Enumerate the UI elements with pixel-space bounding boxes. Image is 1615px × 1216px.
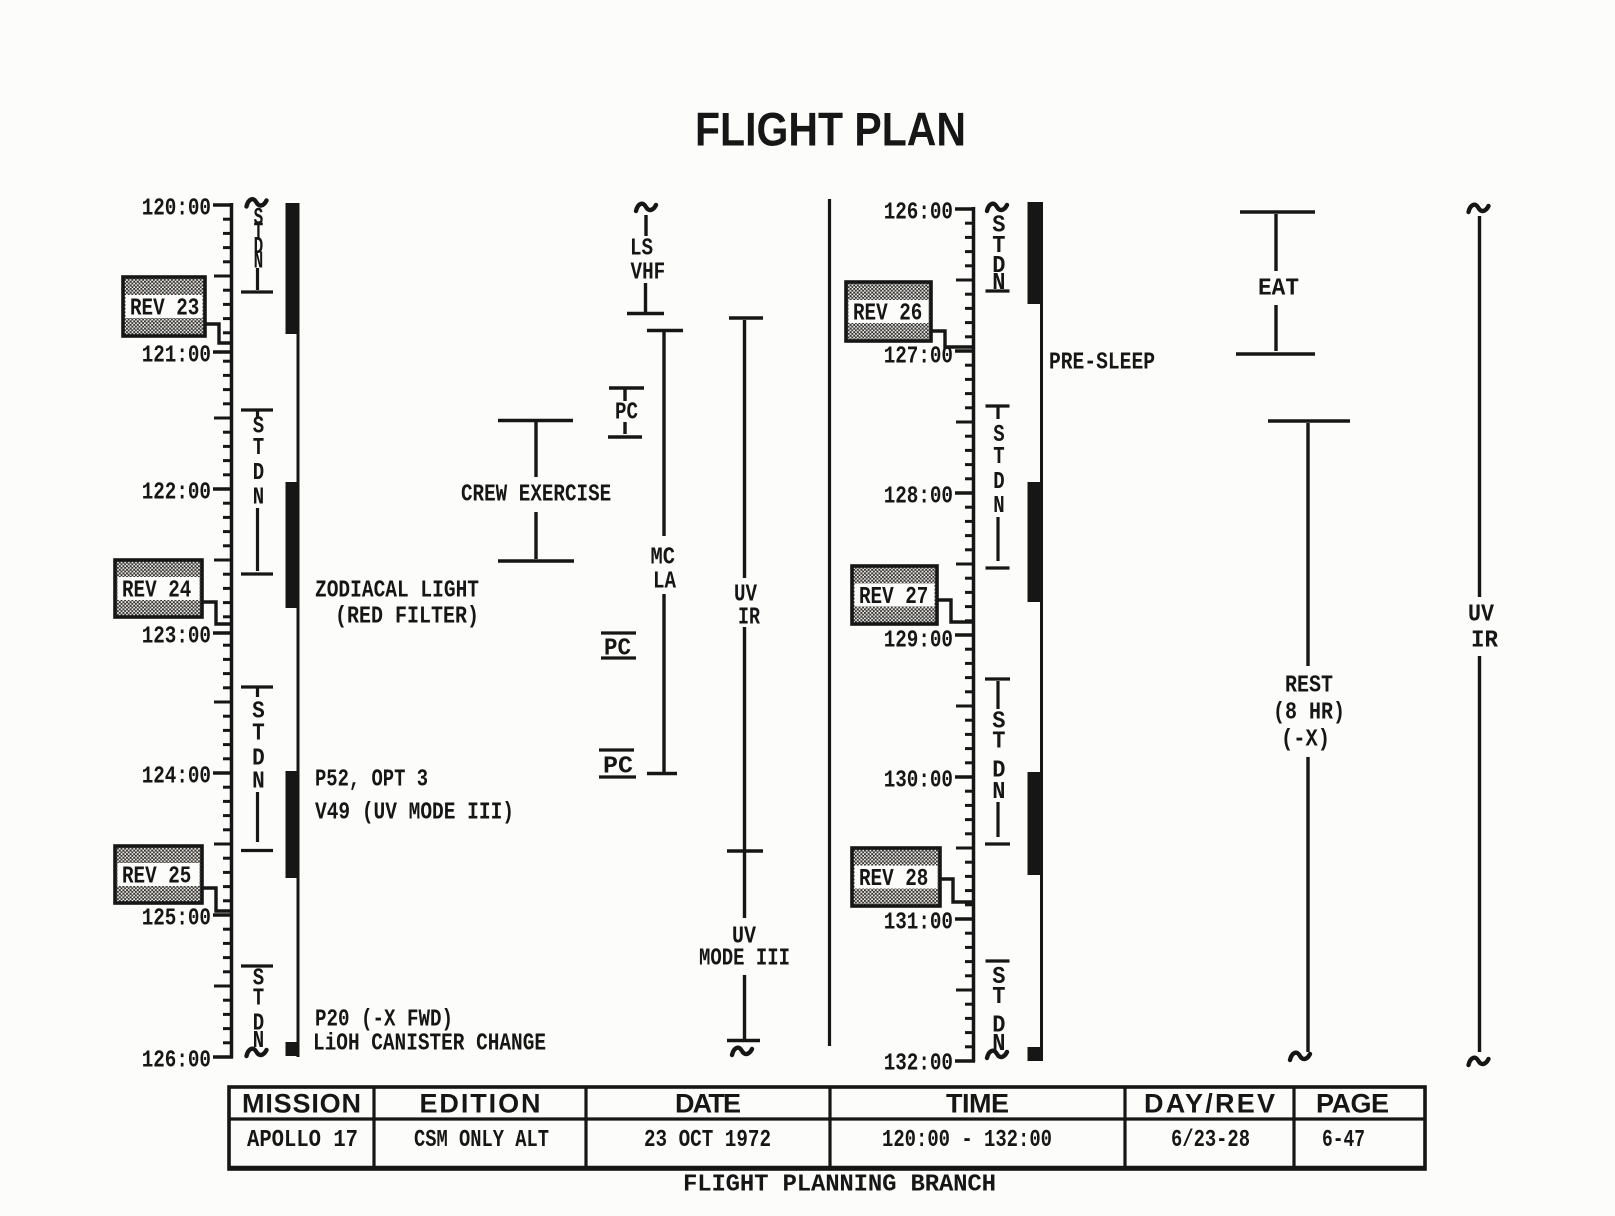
svg-text:LS: LS [630,236,653,263]
svg-text:REV 23: REV 23 [130,295,199,322]
svg-text:EAT: EAT [1258,276,1299,303]
svg-text:122:00: 122:00 [142,480,211,507]
svg-text:(8 HR): (8 HR) [1273,700,1345,727]
svg-text:MISSION: MISSION [242,1089,361,1119]
svg-text:CSM ONLY ALT: CSM ONLY ALT [414,1127,549,1154]
svg-text:REV 24: REV 24 [122,577,191,604]
svg-text:REV 28: REV 28 [859,866,928,893]
svg-text:PAGE: PAGE [1316,1089,1389,1119]
svg-text:6/23-28: 6/23-28 [1171,1127,1250,1154]
svg-text:UV: UV [1468,602,1495,629]
svg-text:131:00: 131:00 [884,910,953,937]
svg-text:PRE-SLEEP: PRE-SLEEP [1049,350,1155,377]
svg-text:FLIGHT PLAN: FLIGHT PLAN [695,103,966,156]
svg-text:DATE: DATE [675,1089,741,1119]
svg-text:D: D [253,460,264,487]
svg-text:IR: IR [738,605,760,632]
svg-text:124:00: 124:00 [142,764,211,791]
svg-text:125:00: 125:00 [142,906,211,933]
svg-text:127:00: 127:00 [884,344,953,371]
svg-text:LiOH CANISTER CHANGE: LiOH CANISTER CHANGE [313,1031,546,1058]
svg-text:REV 26: REV 26 [853,300,922,327]
svg-text:FLIGHT PLANNING BRANCH: FLIGHT PLANNING BRANCH [683,1172,996,1199]
svg-text:D: D [993,469,1004,496]
svg-text:P52, OPT 3: P52, OPT 3 [315,767,428,794]
svg-text:T: T [993,444,1004,471]
svg-text:V49 (UV MODE III): V49 (UV MODE III) [315,800,514,827]
svg-text:N: N [993,493,1004,520]
svg-text:132:00: 132:00 [884,1051,953,1078]
svg-text:120:00: 120:00 [142,196,211,223]
svg-text:(-X): (-X) [1281,727,1330,754]
svg-text:N: N [252,768,265,795]
svg-text:N: N [992,270,1005,297]
svg-text:T: T [253,986,264,1013]
svg-text:MC: MC [651,545,676,572]
svg-text:REV 25: REV 25 [122,863,191,890]
svg-text:128:00: 128:00 [884,484,953,511]
svg-text:T: T [992,984,1005,1011]
svg-text:ZODIACAL LIGHT: ZODIACAL LIGHT [315,578,479,605]
svg-text:REV 27: REV 27 [859,584,928,611]
svg-text:CREW EXERCISE: CREW EXERCISE [461,482,611,509]
svg-text:TIME: TIME [946,1089,1009,1119]
svg-text:T: T [252,720,265,747]
svg-text:23 OCT 1972: 23 OCT 1972 [644,1127,771,1154]
svg-text:T: T [253,435,264,462]
svg-text:N: N [253,485,264,512]
svg-text:123:00: 123:00 [142,624,211,651]
svg-text:126:00: 126:00 [884,200,953,227]
svg-text:VHF: VHF [631,260,666,287]
svg-text:T: T [992,729,1005,756]
svg-text:(RED FILTER): (RED FILTER) [335,604,479,631]
svg-text:APOLLO 17: APOLLO 17 [247,1127,358,1154]
svg-text:126:00: 126:00 [142,1048,211,1075]
svg-text:REST: REST [1285,673,1333,700]
svg-text:130:00: 130:00 [884,768,953,795]
svg-text:120:00 - 132:00: 120:00 - 132:00 [882,1127,1052,1154]
svg-text:129:00: 129:00 [884,628,953,655]
svg-text:LA: LA [653,569,676,596]
svg-text:IR: IR [1471,628,1499,655]
svg-text:121:00: 121:00 [142,343,211,370]
svg-text:MODE III: MODE III [699,946,790,973]
svg-text:6-47: 6-47 [1322,1127,1365,1154]
svg-text:P20 (-X FWD): P20 (-X FWD) [315,1007,453,1034]
